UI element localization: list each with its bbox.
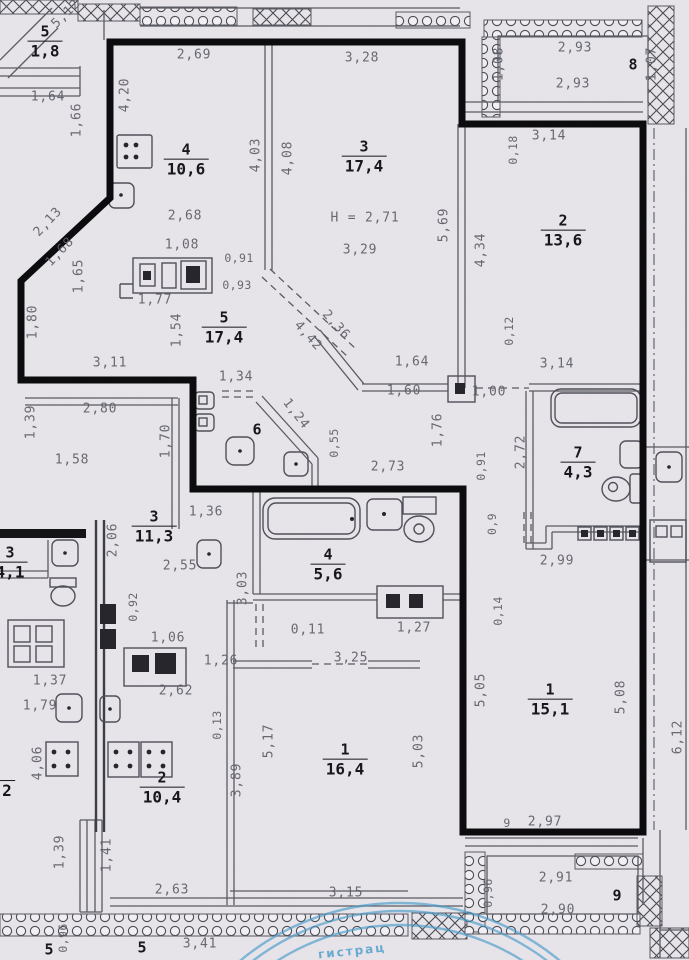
room-label: 517,4 bbox=[202, 310, 247, 347]
dimension-label: 5,08 bbox=[614, 680, 629, 715]
dimension-label: 0,18 bbox=[506, 135, 520, 164]
dimension-label: 3,28 bbox=[345, 51, 380, 66]
dimension-label: 2,97 bbox=[528, 815, 563, 830]
dimension-label: 4,06 bbox=[31, 746, 46, 781]
dimension-label: 1,39 bbox=[24, 405, 39, 440]
dimension-label: 0,93 bbox=[222, 278, 251, 292]
dimension-label: 2,06 bbox=[106, 523, 121, 558]
dimension-label: 9 bbox=[503, 816, 510, 830]
dimension-label: 1,00 bbox=[472, 385, 507, 400]
dimension-label: 3,03 bbox=[236, 571, 251, 606]
room-label: 34,1 bbox=[0, 545, 27, 582]
dimension-label: 2,93 bbox=[556, 77, 591, 92]
room-number: 4 bbox=[179, 142, 192, 159]
dimension-label: 3,15 bbox=[329, 886, 364, 901]
dimension-label: 1,76 bbox=[431, 413, 446, 448]
room-label: 210,4 bbox=[140, 770, 185, 807]
room-label: 8 bbox=[626, 57, 639, 74]
room-number: 5 bbox=[217, 310, 230, 327]
dimension-label: 3,11 bbox=[93, 356, 128, 371]
dimension-label: 0,96 bbox=[56, 923, 70, 952]
dimension-label: 1,77 bbox=[138, 293, 173, 308]
room-area: 17,4 bbox=[342, 155, 387, 175]
dimension-label: 0,13 bbox=[210, 710, 224, 739]
room-label: 410,6 bbox=[164, 142, 209, 179]
dimension-label: 1,06 bbox=[151, 631, 186, 646]
dimension-label: 0,55 bbox=[327, 428, 341, 457]
dimension-label: 0,91 bbox=[474, 451, 488, 480]
dimension-label: 0,96 bbox=[481, 878, 495, 907]
room-label: 317,4 bbox=[342, 139, 387, 176]
dimension-label: 2,68 bbox=[168, 209, 203, 224]
room-label: 45,6 bbox=[311, 547, 346, 584]
dimension-label: 0,11 bbox=[291, 623, 326, 638]
dimension-label: 1,08 bbox=[492, 47, 507, 82]
room-area: 16,4 bbox=[323, 758, 368, 778]
dimension-label: 1,60 bbox=[387, 384, 422, 399]
dimension-label: 2,90 bbox=[541, 903, 576, 918]
dimension-label: 1,37 bbox=[33, 674, 68, 689]
dimension-label: 1,64 bbox=[395, 355, 430, 370]
dimension-label: 2,36 bbox=[319, 307, 353, 343]
room-number: 5 bbox=[135, 940, 148, 957]
dimension-label: 4,08 bbox=[281, 141, 296, 176]
dimension-label: 1,64 bbox=[31, 90, 66, 105]
room-number: 5 bbox=[38, 24, 51, 41]
room-area: 2 bbox=[0, 780, 15, 800]
dimension-label: 1,58 bbox=[55, 453, 90, 468]
dimension-label: 2,91 bbox=[539, 871, 574, 886]
dimension-label: 3,29 bbox=[343, 243, 378, 258]
room-area: 17,4 bbox=[202, 326, 247, 346]
dimension-label: 1,80 bbox=[26, 305, 41, 340]
room-number: 3 bbox=[357, 139, 370, 156]
labels-layer: 51,8410,6317,48213,6517,4674,3311,334,14… bbox=[0, 0, 689, 960]
room-number: 1 bbox=[338, 742, 351, 759]
room-area: 10,6 bbox=[164, 158, 209, 178]
dimension-label: 2,73 bbox=[371, 460, 406, 475]
room-area: 4,1 bbox=[0, 561, 27, 581]
room-number: 9 bbox=[610, 888, 623, 905]
dimension-label: 6,12 bbox=[671, 720, 686, 755]
room-label: 5 bbox=[135, 940, 148, 957]
dimension-label: 1,41 bbox=[100, 838, 115, 873]
dimension-label: 3,14 bbox=[532, 129, 567, 144]
room-area: 4,3 bbox=[561, 461, 596, 481]
dimension-label: 1,27 bbox=[397, 621, 432, 636]
dimension-label: 2,72 bbox=[514, 435, 529, 470]
dimension-label: 0,12 bbox=[502, 316, 516, 345]
room-label: 74,3 bbox=[561, 445, 596, 482]
dimension-label: 3,25 bbox=[334, 651, 369, 666]
room-label: 9 bbox=[610, 888, 623, 905]
room-area: 5,6 bbox=[311, 563, 346, 583]
dimension-label: 1,24 bbox=[279, 396, 312, 432]
dimension-label: 0,9 bbox=[485, 513, 499, 535]
room-number: 1 bbox=[543, 682, 556, 699]
room-number: 8 bbox=[626, 57, 639, 74]
stamp-text: гистрац bbox=[317, 940, 386, 960]
room-number: 7 bbox=[571, 445, 584, 462]
room-label: 5 bbox=[42, 942, 55, 959]
dimension-label: 1,26 bbox=[204, 654, 239, 669]
dimension-label: 1,39 bbox=[53, 835, 68, 870]
dimension-label: 4,42 bbox=[291, 318, 325, 354]
dimension-label: 1,70 bbox=[159, 424, 174, 459]
dimension-label: 5,03 bbox=[412, 734, 427, 769]
room-area: 11,3 bbox=[132, 525, 177, 545]
dimension-label: 1,66 bbox=[70, 103, 85, 138]
room-area: 1,8 bbox=[28, 40, 63, 60]
dimension-label: 1,34 bbox=[219, 370, 254, 385]
dimension-label: 5,05 bbox=[474, 673, 489, 708]
dimension-label: 1,54 bbox=[170, 313, 185, 348]
room-area: 13,6 bbox=[541, 229, 586, 249]
room-label: 115,1 bbox=[528, 682, 573, 719]
dimension-label: 4,20 bbox=[118, 78, 133, 113]
dimension-label: Н = 2,71 bbox=[330, 211, 399, 226]
dimension-label: 2,69 bbox=[177, 48, 212, 63]
room-label: 2 bbox=[0, 780, 15, 800]
room-label: 6 bbox=[250, 422, 263, 439]
room-number: 5 bbox=[42, 942, 55, 959]
dimension-label: 2,13 bbox=[31, 204, 66, 239]
dimension-label: 4,03 bbox=[249, 138, 264, 173]
dimension-label: 1,08 bbox=[165, 238, 200, 253]
dimension-label: 0,14 bbox=[491, 596, 505, 625]
dimension-label: 0,92 bbox=[126, 592, 140, 621]
dimension-label: 2,55 bbox=[163, 559, 198, 574]
room-label: 116,4 bbox=[323, 742, 368, 779]
dimension-label: 5,69 bbox=[437, 208, 452, 243]
dimension-label: 1,65 bbox=[72, 259, 87, 294]
dimension-label: 1,79 bbox=[23, 699, 58, 714]
floor-plan: 51,8410,6317,48213,6517,4674,3311,334,14… bbox=[0, 0, 689, 960]
room-number: 4 bbox=[321, 547, 334, 564]
dimension-label: 5,12 bbox=[48, 0, 83, 32]
dimension-label: 2,62 bbox=[159, 684, 194, 699]
room-number: 2 bbox=[155, 770, 168, 787]
dimension-label: 4,34 bbox=[474, 233, 489, 268]
room-label: 213,6 bbox=[541, 213, 586, 250]
room-area: 10,4 bbox=[140, 786, 185, 806]
dimension-label: 3,14 bbox=[540, 357, 575, 372]
dimension-label: 1,36 bbox=[189, 505, 224, 520]
dimension-label: 2,80 bbox=[83, 402, 118, 417]
dimension-label: 3,41 bbox=[183, 937, 218, 952]
dimension-label: 1,07 bbox=[645, 47, 660, 82]
room-number: 2 bbox=[556, 213, 569, 230]
room-area: 15,1 bbox=[528, 698, 573, 718]
dimension-label: 2,63 bbox=[155, 883, 190, 898]
room-number: 6 bbox=[250, 422, 263, 439]
dimension-label: 5,17 bbox=[262, 724, 277, 759]
dimension-label: 0,91 bbox=[224, 251, 253, 265]
room-number: 3 bbox=[3, 545, 16, 562]
dimension-label: 2,99 bbox=[540, 554, 575, 569]
room-number: 3 bbox=[147, 509, 160, 526]
room-label: 311,3 bbox=[132, 509, 177, 546]
dimension-label: 2,93 bbox=[558, 41, 593, 56]
dimension-label: 3,89 bbox=[230, 763, 245, 798]
